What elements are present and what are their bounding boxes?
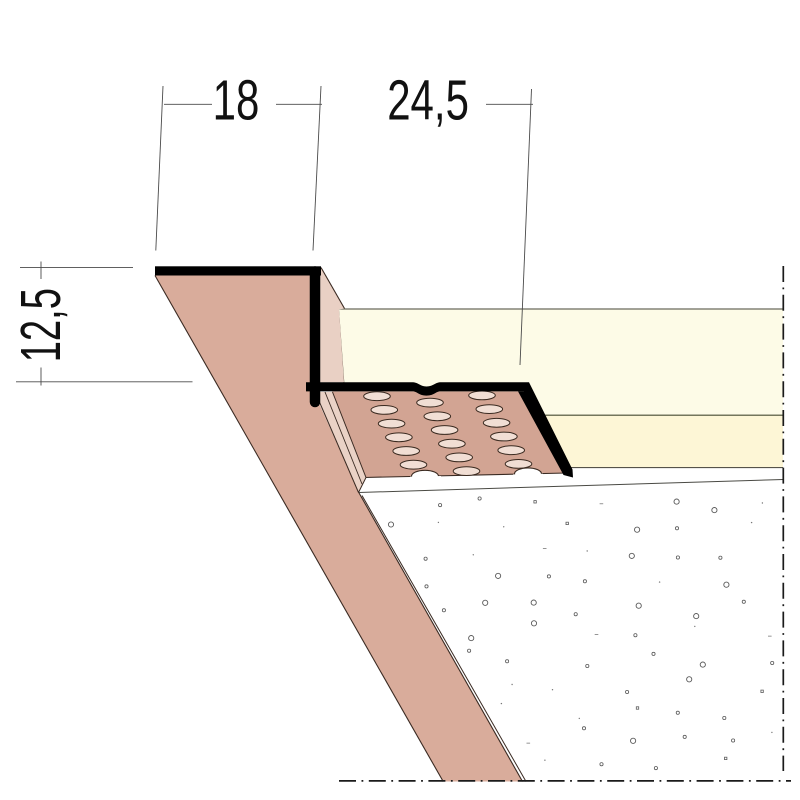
svg-text:12,5: 12,5 xyxy=(9,288,72,362)
svg-text:18: 18 xyxy=(213,68,260,132)
svg-text:24,5: 24,5 xyxy=(387,68,469,132)
